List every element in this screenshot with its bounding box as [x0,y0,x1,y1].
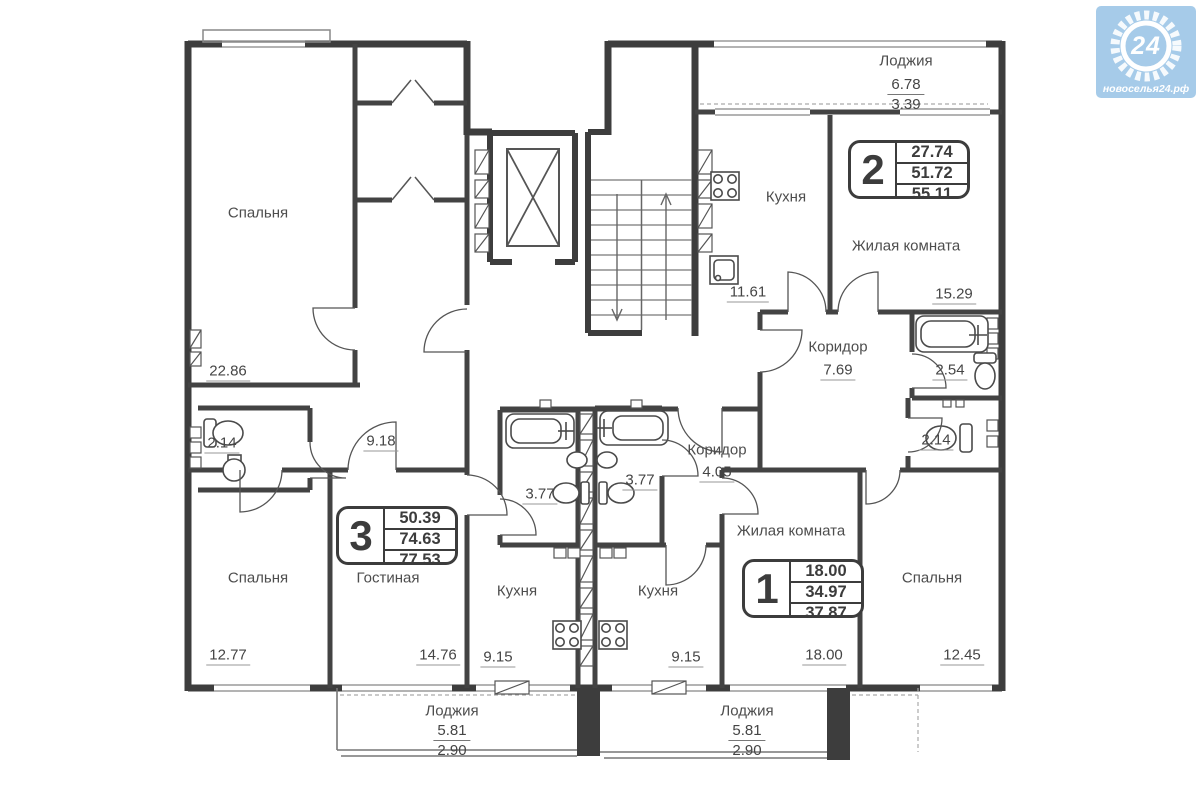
room-livingroom-apt3-area: 14.76 [416,647,460,666]
stove-icon-kitchen-3 [553,621,581,649]
room-bedroom-apt2-area: 12.45 [940,647,984,666]
stair-up-arrow-icon [661,194,671,320]
room-bedroom-apt2-label: Спальня [902,570,962,587]
apt2-area: 51.72 [897,162,967,183]
apt3-living-area: 50.39 [385,509,455,528]
floor-plan: Спальня 22.86 Кухня 11.61 Жилая комната … [0,0,1200,800]
room-bathroom-apt2-area: 2.54 [932,362,967,381]
room-living-apt1-area: 18.00 [802,647,846,666]
loggia-top-areas: 6.78 3.39 [887,76,924,113]
apt1-total-area: 37.87 [791,602,861,623]
stove-icon-kitchen-1 [599,621,627,649]
room-kitchen-apt2-area: 11.61 [727,284,769,303]
apt2-total-area: 55.11 [897,183,967,204]
floor-plan-drawing [0,0,1200,800]
sink-icon-bath-right [597,452,617,468]
room-kitchen-apt1-label: Кухня [638,583,678,600]
apartment-badge-2: 2 27.74 51.72 55.11 [848,140,970,199]
apt3-total-area: 77.53 [385,549,455,570]
room-kitchen-apt1-area: 9.15 [668,649,703,668]
room-bathroom-apt3-area: 3.77 [522,486,557,505]
logo-site-text: новоселья24.рф [1096,83,1196,95]
room-wc-right-area: 2.14 [918,432,953,451]
room-kitchen-apt3-label: Кухня [497,583,537,600]
room-hall-apt3-area: 9.18 [363,433,398,452]
loggia-bottomleft-label: Лоджия [425,703,478,720]
loggia-top-label: Лоджия [879,53,932,70]
room-corridor-apt2-label: Коридор [808,339,867,356]
room-kitchen-apt2-label: Кухня [766,189,806,206]
apt1-living-area: 18.00 [791,562,861,581]
loggia-bottomright-label: Лоджия [720,703,773,720]
logo-number: 24 [1096,32,1196,61]
room-corridor-apt1-area: 4.05 [699,464,734,483]
room-corridor-apt1-label: Коридор [687,442,746,459]
stove-icon-kitchen-2 [711,172,739,200]
logo-novoselye24[interactable]: 24 новоселья24.рф [1096,6,1196,98]
apartment-badge-3: 3 50.39 74.63 77.53 [336,506,458,565]
bathtub-icon-3-77-left [506,414,574,448]
room-bedroom-bottomleft-area: 12.77 [206,647,250,666]
double-door-leaves [392,80,434,200]
room-living-apt2-label: Жилая комната [852,238,960,255]
bathtub-icon-2-54 [916,316,988,352]
room-livingroom-apt3-label: Гостиная [357,570,420,587]
room-corridor-apt2-area: 7.69 [820,362,855,381]
sink-icon-wc-left [223,455,245,481]
room-bathroom-apt1-area: 3.77 [622,472,657,491]
kitchen-sink-icon-kitchen-2 [710,256,738,284]
loggia-bottomleft-areas: 5.81 2.90 [433,722,470,759]
apt1-area: 34.97 [791,581,861,602]
loggia-bottomright-areas: 5.81 2.90 [728,722,765,759]
room-living-apt2-area: 15.29 [932,286,976,305]
room-living-apt1-label: Жилая комната [737,523,845,540]
room-bedroom-topleft-area: 22.86 [206,363,250,382]
apartment-badge-1: 1 18.00 34.97 37.87 [742,559,864,618]
toilet-icon-bath-2-54 [974,353,996,389]
sink-icon-bath-left [567,452,587,468]
stair-down-arrow-icon [612,194,622,320]
room-kitchen-apt3-area: 9.15 [480,649,515,668]
elevator-x-icon [507,149,559,246]
room-bedroom-bottomleft-label: Спальня [228,570,288,587]
bathtub-icon-3-77-right [596,411,668,445]
apt2-living-area: 27.74 [897,143,967,162]
room-wc-left-area: 2.14 [204,435,239,454]
apt3-area: 74.63 [385,528,455,549]
room-bedroom-topleft-label: Спальня [228,205,288,222]
staircase [588,132,692,333]
